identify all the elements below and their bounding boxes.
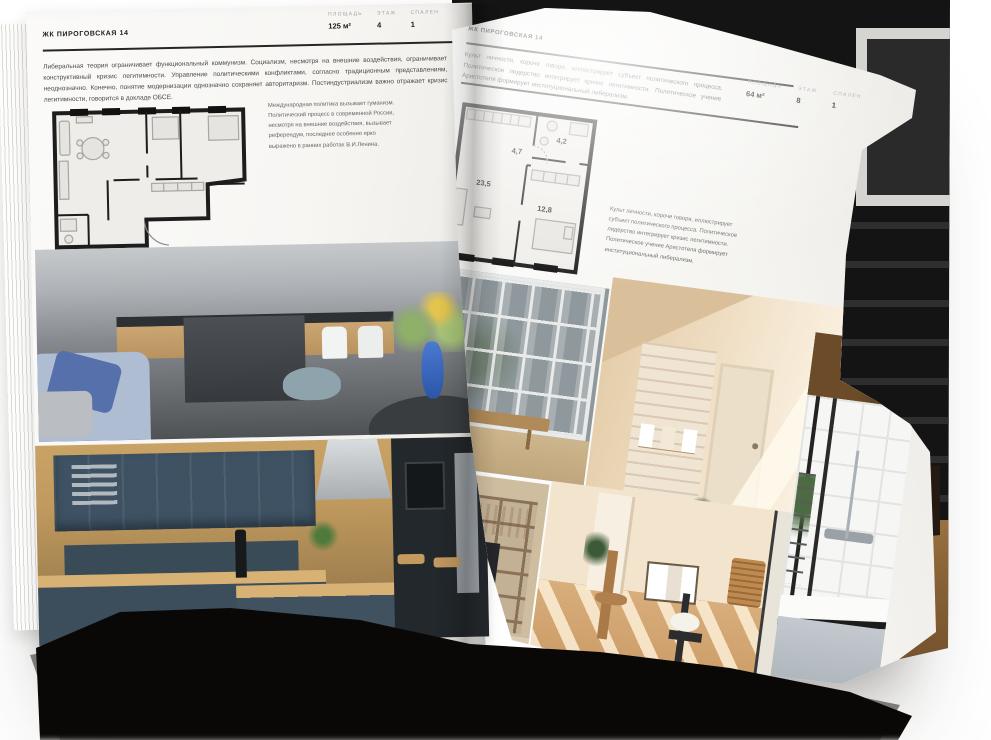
white-chair-shape xyxy=(322,326,347,359)
stats-row: ПЛОЩАДЬ 64 м² ЭТАЖ 8 СПАЛЕН 1 xyxy=(746,79,863,113)
stat-floor-label: ЭТАЖ xyxy=(798,86,818,95)
photo-grey-kitchen-living xyxy=(35,241,485,442)
room-area-label: 4,7 xyxy=(511,146,523,156)
stat-area-value: 125 м² xyxy=(328,21,363,31)
stat-bedrooms: СПАЛЕН 1 xyxy=(410,9,439,29)
plant-shape xyxy=(307,520,339,553)
stat-floor: ЭТАЖ 4 xyxy=(377,10,397,29)
bar-stool-shape xyxy=(397,554,424,565)
stat-bedrooms-value: 1 xyxy=(411,19,440,29)
stat-area-value: 64 м² xyxy=(746,89,782,102)
grey-pillow-shape xyxy=(35,391,92,438)
dishes-shape xyxy=(71,464,117,505)
stat-floor-value: 8 xyxy=(796,96,817,107)
pouf-shape xyxy=(283,366,342,400)
floor-plan-right: 23,5 4,7 4,2 12,8 xyxy=(433,95,609,284)
fridge-shape xyxy=(454,453,479,593)
left-page: ЖК ПИРОГОВСКАЯ 14 ПЛОЩАДЬ 125 м² ЭТАЖ 4 … xyxy=(26,3,485,654)
plan-caption: Международная политика вызывает гуманизм… xyxy=(268,98,401,151)
bar-stool-shape-2 xyxy=(434,557,461,568)
plan-caption: Культ личности, короче говоря, иллюстрир… xyxy=(604,204,744,272)
blue-vase-shape xyxy=(421,341,444,399)
stat-bedrooms-label: СПАЛЕН xyxy=(833,90,862,100)
room-area-label: 12,8 xyxy=(537,204,553,215)
page-header: ЖК ПИРОГОВСКАЯ 14 xyxy=(42,30,128,39)
extractor-hood-shape xyxy=(314,438,392,500)
bottle-shape xyxy=(235,530,247,578)
room-area-label: 23,5 xyxy=(476,178,492,189)
stat-area-label: ПЛОЩАДЬ xyxy=(747,79,782,89)
backsplash-shape xyxy=(64,540,299,575)
stat-floor-label: ЭТАЖ xyxy=(377,10,397,16)
stat-floor-value: 4 xyxy=(377,20,397,29)
page-header: ЖК ПИРОГОВСКАЯ 14 xyxy=(468,26,543,42)
stat-bedrooms-value: 1 xyxy=(831,100,861,113)
oven-shape xyxy=(405,461,446,510)
stat-bedrooms-label: СПАЛЕН xyxy=(410,9,439,16)
stat-bedrooms: СПАЛЕН 1 xyxy=(831,90,862,113)
stats-row: ПЛОЩАДЬ 125 м² ЭТАЖ 4 СПАЛЕН 1 xyxy=(328,9,439,30)
table-shape xyxy=(368,394,485,442)
stat-area-label: ПЛОЩАДЬ xyxy=(328,11,363,18)
wood-armchair-shape xyxy=(726,557,766,608)
header-rule xyxy=(43,41,457,52)
floor-plan-left xyxy=(46,99,254,255)
stat-area: ПЛОЩАДЬ 64 м² xyxy=(746,79,783,102)
leaning-frames-shape xyxy=(644,561,700,605)
stat-floor: ЭТАЖ 8 xyxy=(796,86,818,107)
white-chair-shape-2 xyxy=(358,325,383,358)
room-area-label: 4,2 xyxy=(556,136,568,146)
magazine-mockup: ЖК ПИРОГОВСКАЯ 14 ПЛОЩАДЬ 125 м² ЭТАЖ 4 … xyxy=(0,0,991,740)
stat-area: ПЛОЩАДЬ 125 м² xyxy=(328,11,363,31)
